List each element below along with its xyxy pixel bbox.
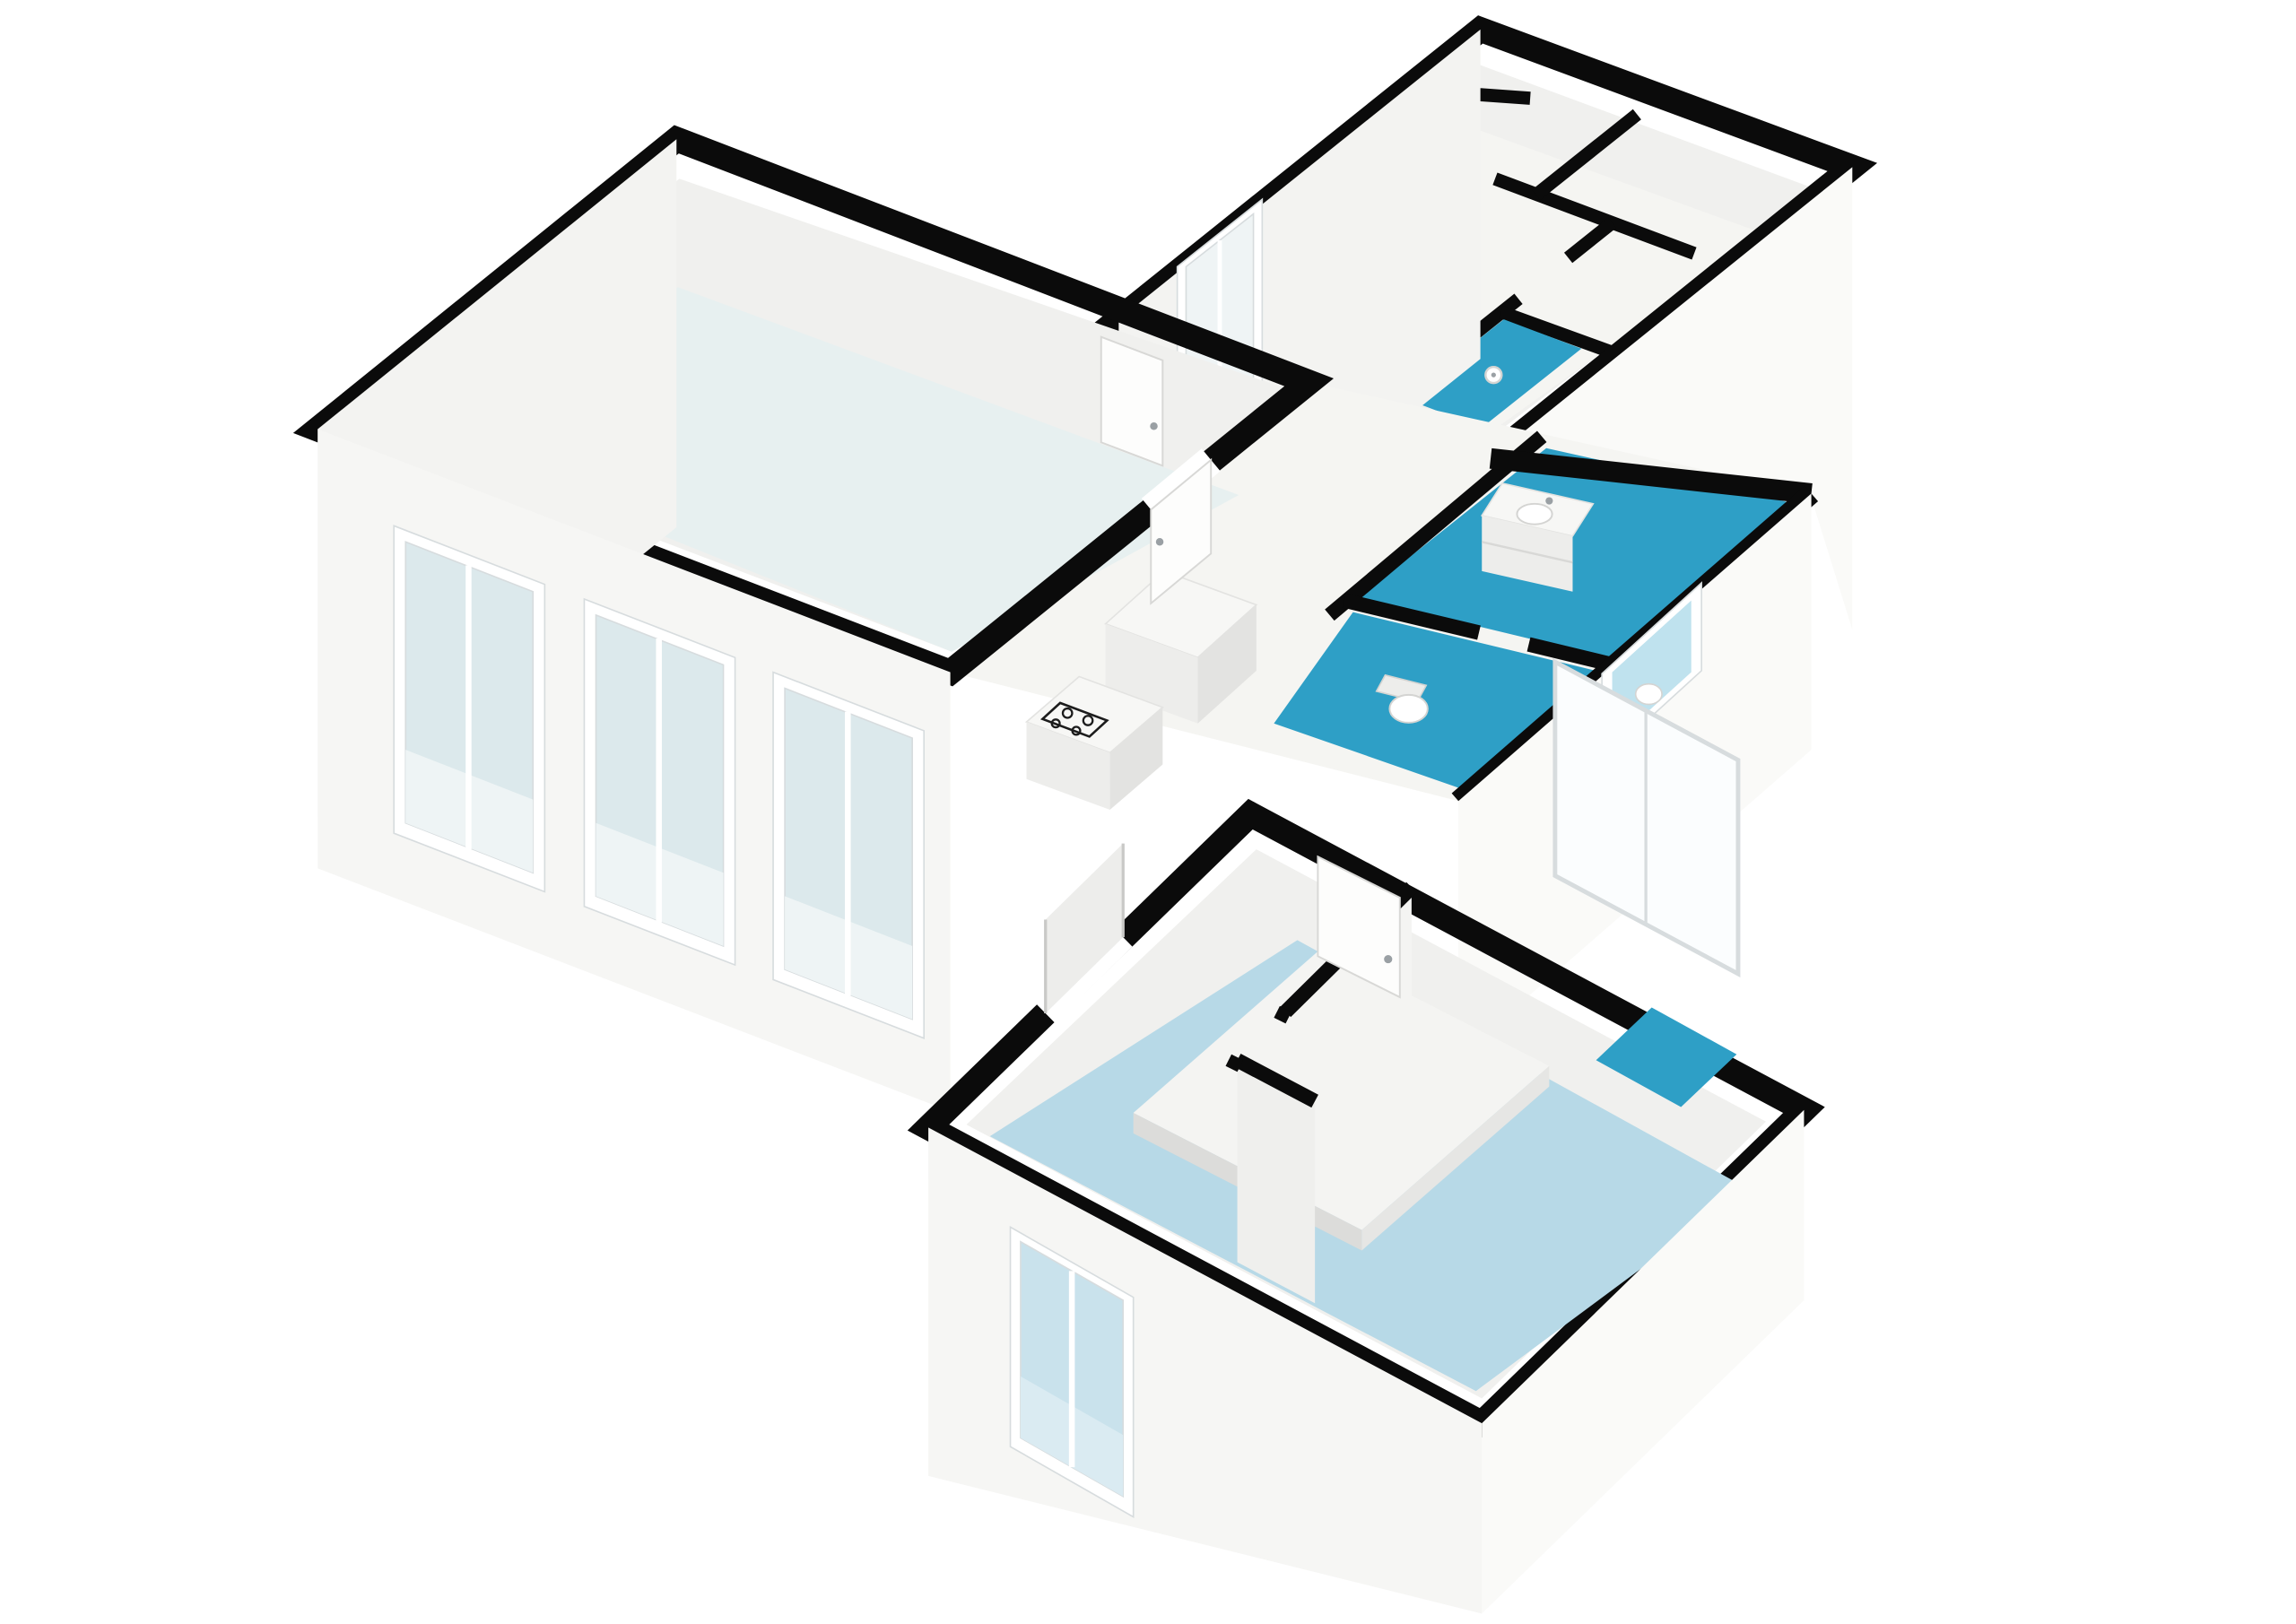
- kitchen-door-handle: [1156, 538, 1163, 545]
- sliding-window-3: [773, 673, 924, 1038]
- sink-basin: [1517, 504, 1552, 525]
- living-hall-door-leaf: [1101, 337, 1163, 466]
- bedroom-door-handle: [1384, 955, 1392, 963]
- sliding-window-2: [584, 599, 735, 965]
- shower-head-dot: [1492, 373, 1496, 378]
- floorplan-stage: [0, 0, 2296, 1624]
- toilet-seen-through-window: [1636, 684, 1662, 705]
- bedroom-block: [928, 662, 1804, 1613]
- faucet: [1545, 497, 1552, 504]
- sliding-window-1: [394, 525, 544, 891]
- living-hall-door-handle: [1150, 422, 1157, 430]
- toilet-bowl: [1389, 695, 1427, 723]
- floor-plan-3d: [0, 0, 2296, 1624]
